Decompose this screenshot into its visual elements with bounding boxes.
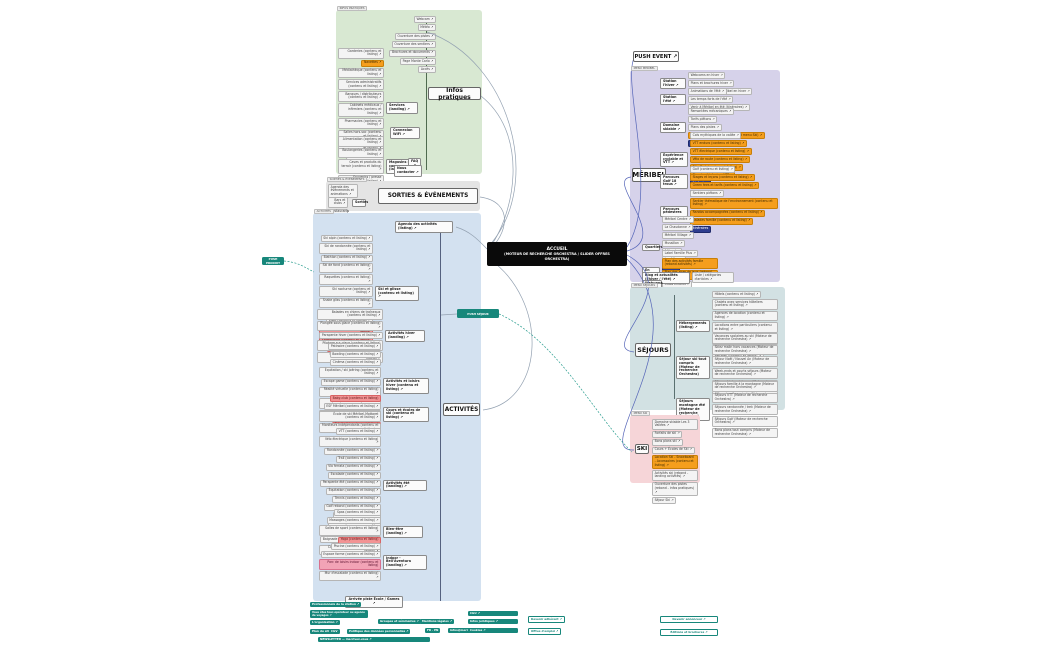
footer-btn-langues[interactable]: FR · EN [425,628,440,633]
leaf-node[interactable]: Week-ends et courts séjours (Moteur de r… [712,368,778,379]
footer-btn-donnees[interactable]: Politique des données personnelles ↗ [347,629,410,634]
ecoles-node[interactable]: Cours et écoles de ski (contenu et listi… [383,407,429,422]
block-meribel: MENU MERIBEL MÉRIBEL Station l'hiver ↗ W… [630,70,780,282]
block-tag-meribel: MENU MERIBEL [631,66,658,72]
leaf-node[interactable]: École de ski Méribel-Mottaret (contenu e… [319,411,381,422]
services-node[interactable]: Services (landing) ↗ [386,102,418,114]
leaf-node[interactable]: Locations entre particuliers (contenu et… [712,322,778,333]
bienetre-node[interactable]: Bien-être (landing) ↗ [383,526,423,538]
leaf-node[interactable]: Skiez malin hors vacances (Moteur de rec… [712,345,778,356]
leaf-node[interactable]: ESF Méribel (contenu et listing) ↗ [324,403,381,410]
connector-lines [0,0,1050,650]
leaf-node[interactable]: Ski nocturne (contenu et listing) ↗ [319,286,373,297]
leaf-node[interactable]: Alimentation (contenu et listing) ↗ [338,136,384,147]
footer-btn-organisation[interactable]: L'organisation ↗ [310,620,340,625]
leaf-node[interactable]: Patinoire (contenu et listing) ↗ [328,343,381,350]
leaf-node[interactable]: Webcam ↗ [414,16,436,23]
leaf-node[interactable]: Bars et clubs ↗ [328,197,348,208]
sejours-node-1[interactable]: Séjour ski tout compris (Moteur de reche… [676,356,710,379]
footer-btn-pros[interactable]: Professionnels de la station ↗ [310,602,361,607]
leaf-node[interactable]: Green fees et tarifs (contenu et listing… [690,182,759,189]
infos-title-node[interactable]: Infos pratiques [428,87,481,100]
leaf-node[interactable]: Pharmacies (contenu et listing) ↗ [338,118,384,129]
footer-btn-editions[interactable]: Éditions et brochures ↗ [660,629,718,636]
leaf-node[interactable]: Piscine (contenu et listing) ↗ [331,543,381,550]
ski-items: Domaine skiable Les 3 Vallées ↗Forfaits … [652,419,698,504]
leaf-node[interactable]: Animations de l'été ↗ [688,88,727,95]
leaf-node[interactable]: VTT électrique (contenu et listing) ↗ [690,148,752,155]
leaf-node[interactable]: Vacances scolaires au ski (Moteur de rec… [712,333,778,344]
footer-btn-mentions[interactable]: Mentions légales ↗ [420,619,454,624]
leaf-node[interactable]: Boulangeries (contenu et listing) ↗ [338,148,384,159]
leaf-node[interactable]: Vélo de route (contenu et listing) ↗ [690,156,750,163]
meribel-node-4[interactable]: Parcours Golf 18 trous ↗ [660,174,688,189]
leaf-node[interactable]: Cinéma (contenu et listing) ↗ [330,359,381,366]
block-sejours: MENU SEJOURS SÉJOURS Hébergements (listi… [630,287,785,410]
push-right-node[interactable]: PUSH SÉJOUR [457,309,499,318]
leaf-node[interactable]: Spas (contenu et listing) ↗ [334,509,381,516]
leaf-node[interactable]: Remontées mécaniques ↗ [688,108,734,115]
branch-indoor: Piscine (contenu et listing) ↗Espace for… [319,543,427,581]
meribel-children-8: Liste / catégories d'articles ↗ [692,272,734,283]
leaf-node[interactable]: Séjours randonnée / trek (Moteur de rech… [712,404,778,415]
leaf-node[interactable]: Caves et produits du terroir (contenu et… [338,159,384,173]
leaf-node[interactable]: Golf (contenu et listing) ↗ [690,166,735,173]
leaf-node[interactable]: Plongée sous glace (contenu et listing) … [317,321,383,332]
leaf-node[interactable]: VTT enduro (contenu et listing) ↗ [690,140,747,147]
sorties-title-node[interactable]: SORTIES & ÉVÉNEMENTS [378,188,478,204]
leaf-node[interactable]: Les temps forts de l'été ↗ [688,96,733,103]
leaf-node[interactable]: Accès ↗ [418,66,436,73]
footer-btn-juridique[interactable]: Infos juridiques ↗ [468,619,518,624]
footer-btn-cgv[interactable]: CGV [329,629,340,634]
leaf-node[interactable]: Forfaits de ski ↗ [652,431,682,438]
sitemap-canvas: INFOS PRATIQUES Webcam ↗Météo ↗Ouverture… [0,0,1050,650]
loisirs-node[interactable]: Activités et loisirs hiver (contenu et l… [383,378,429,393]
leaf-node[interactable]: Services administratifs (contenu et list… [338,79,384,90]
leaf-node[interactable]: Sentier thématique de l'environnement (c… [690,198,778,209]
block-tag-ski: MENU SKI [631,411,650,417]
glisse-node[interactable]: Ski et glisse (contenu et listing) ↗ [375,286,419,301]
leaf-node[interactable]: Baby-club (contenu et listing) [330,395,381,402]
leaf-node[interactable]: Séjours Golf (Moteur de recherche Orches… [712,416,778,427]
leaf-node[interactable]: Location Ski - Snowboard - Accessoires (… [652,455,698,469]
sejours-spine [674,295,675,399]
block-activites: ACTIVITÉS Agenda des activités (listing)… [313,213,481,601]
leaf-node[interactable]: Navettes ↗ [361,60,384,67]
meribel-node-3[interactable]: Expérience cyclable et VTT ↗ [660,152,688,167]
leaf-node[interactable]: Séjour Noël / Nouvel An (Moteur de reche… [712,356,778,367]
leaf-node[interactable]: La Chaudanne ↗ [662,224,693,231]
block-infos-pratiques: INFOS PRATIQUES Webcam ↗Météo ↗Ouverture… [336,10,482,174]
leaf-node[interactable]: Méribel Centre ↗ [662,216,694,223]
leaf-node[interactable]: Cours + Écoles de Ski ↗ [652,447,695,454]
meribel-node-1[interactable]: Station l'été ↗ [660,94,686,106]
push-left-node[interactable]: PUSH PRODUIT [262,257,284,265]
push-event-node[interactable]: PUSH EVENT ↗ [633,51,679,62]
leaf-node[interactable]: Plan des activités famille (rebond activ… [662,258,718,269]
leaf-node[interactable]: Salles de sport (contenu et listing) ↗ [319,525,381,536]
block-ski: MENU SKI SKI Domaine skiable Les 3 Vallé… [630,415,700,483]
leaf-node[interactable]: Ski de fond (contenu et listing) ↗ [319,263,373,274]
leaf-node[interactable]: Séjours VTT (Moteur de recherche Orchest… [712,393,778,404]
leaf-node[interactable]: Liste / catégories d'articles ↗ [692,272,734,283]
leaf-node[interactable]: Ouverture des pistes ↗ [395,33,436,40]
sejours-node-0[interactable]: Hébergements (listing) ↗ [676,320,710,332]
leaf-node[interactable]: Bowling (contenu et listing) ↗ [330,351,381,358]
leaf-node[interactable]: Biathlon (contenu et listing) ↗ [321,255,373,262]
leaf-node[interactable]: Cols mythiques de la vallée ↗ [690,132,741,139]
indoor-node[interactable]: Indoor - Bell'Aventura (landing) ↗ [383,555,427,570]
leaf-node[interactable]: Agences de location (contenu et listing)… [712,311,778,322]
leaf-node[interactable]: Ouverture des pistes (rebond - infos pra… [652,482,698,496]
activites-title-node[interactable]: ACTIVITÉS [443,403,480,416]
indoor-leaves: Piscine (contenu et listing) ↗Espace for… [319,543,381,581]
footer-btn-adherent[interactable]: Devenir adhérent ↗ [528,616,565,623]
leaf-node[interactable]: Sentiers piétons ↗ [690,190,724,197]
leaf-node[interactable]: Raquettes (contenu et listing) ↗ [319,274,373,285]
leaf-node[interactable]: Médiathèque (contenu et listing) ↗ [338,68,384,79]
leaf-node[interactable]: Stages et leçons (contenu et listing) ↗ [690,174,755,181]
ski-title-node[interactable]: SKI [635,444,649,454]
leaf-node[interactable]: Chalets avec services hôteliers (contenu… [712,299,778,310]
leaf-node[interactable]: Parapente hiver (contenu et listing) ↗ [319,332,383,339]
block-sorties: SORTIES & ÉVÉNEMENTS Agenda des événemen… [326,181,480,211]
sejours-title-node[interactable]: SÉJOURS [635,343,671,357]
footer-btn-cookies[interactable]: Cookies ↗ [468,628,518,633]
leaf-node[interactable]: Tarifs piétons ↗ [688,116,717,123]
sorties-node[interactable]: Sorties [352,199,366,207]
leaf-node[interactable]: Mur d'escalade (contenu et listing) ↗ [319,571,381,582]
footer-btn-emploi[interactable]: Offres d'emploi ↗ [528,628,561,635]
leaf-node[interactable]: Domaine skiable Les 3 Vallées ↗ [652,419,698,430]
leaf-node[interactable]: Ski de randonnée (contenu et listing) ↗ [319,243,373,254]
leaf-node[interactable]: Massages (contenu et listing) ↗ [327,517,381,524]
leaf-node[interactable]: Équitation / ski joëring (contenu et lis… [319,367,381,378]
leaf-node[interactable]: Ski alpin (contenu et listing) ↗ [321,235,373,242]
contact-node[interactable]: Nous contacter ↗ [394,165,422,177]
meribel-children-5: Sentiers piétons ↗Sentier thématique de … [690,190,778,233]
leaf-node[interactable]: Mussillon ↗ [662,240,685,247]
leaf-node[interactable]: Méribel Village ↗ [662,232,694,239]
leaf-node[interactable]: Équitation (contenu et listing) ↗ [326,488,381,495]
leaf-node[interactable]: Randonnée (contenu et listing) ↗ [324,448,381,455]
leaf-node[interactable]: Activités ski (rebond - landing activité… [652,470,698,481]
leaf-node[interactable]: VTT (contenu et listing) ↗ [336,428,381,435]
leaf-node[interactable]: Séjours famille à la montagne (Moteur de… [712,381,778,392]
leaf-node[interactable]: Météo ↗ [418,24,436,31]
leaf-node[interactable]: Plans et brochures hiver ↗ [688,80,734,87]
leaf-node[interactable]: Tennis (contenu et listing) ↗ [332,496,381,503]
block-tag-activites: ACTIVITÉS [314,209,334,215]
block-tag-sorties: SORTIES & ÉVÉNEMENTS [327,177,367,183]
leaf-node[interactable]: Escalade (contenu et listing) ↗ [328,472,381,479]
footer-btn-cgu[interactable]: CGU ↗ [468,611,518,616]
block-tag-infos: INFOS PRATIQUES [337,6,367,12]
accueil-subtitle: (MOTEUR DE RECHERCHE ORCHESTRA / SLIDER … [487,252,627,261]
leaf-node[interactable]: Label Famille Plus ↗ [662,250,698,257]
block-tag-sejours: MENU SEJOURS [631,283,658,289]
leaf-node[interactable]: Vélo électrique (contenu et listing) ↗ [319,436,381,447]
leaf-node[interactable]: Espace forme (contenu et listing) ↗ [321,551,381,558]
leaf-node[interactable]: Hôtels (contenu et listing) ↗ [712,291,761,298]
footer-btn-groupes[interactable]: Groupes et séminaires ↗ [378,619,421,624]
leaf-node[interactable]: Snake gliss (contenu et listing) ↗ [319,298,373,309]
leaf-node[interactable]: Séjour Ski ↗ [652,497,676,504]
ete-node[interactable]: Activités été (landing) ↗ [383,480,427,492]
accueil-center-node[interactable]: ACCUEIL (MOTEUR DE RECHERCHE ORCHESTRA /… [487,242,627,266]
leaf-node[interactable]: Banques / distributeurs (contenu et list… [338,91,384,102]
leaf-node[interactable]: Plans des pistes ↗ [688,124,722,131]
footer-btn-newsletter[interactable]: NEWSLETTER — inscrivez-vous ↗ [318,637,430,642]
hiver-node[interactable]: Activités hiver (landing) ↗ [385,330,425,342]
leaf-node[interactable]: Bons plans ski ↗ [652,439,683,446]
leaf-node[interactable]: Cabinets médicaux / infirmiers (contenu … [338,103,384,117]
leaf-node[interactable]: Escape game (contenu et listing) ↗ [321,379,381,386]
sejours-children-2: Séjours famille à la montagne (Moteur de… [712,381,778,438]
leaf-node[interactable]: Garderies (contenu et listing) ↗ [338,48,384,59]
footer-btn-annonceur[interactable]: Devenir annonceur ↗ [660,616,718,623]
leaf-node[interactable]: Balades en chiens de traîneaux (contenu … [317,309,383,320]
leaf-node[interactable]: Bons plans tout compris (Moteur de reche… [712,428,778,439]
leaf-node[interactable]: Parc de loisirs indoor (contenu et listi… [319,559,381,570]
leaf-node[interactable]: Via ferrata (contenu et listing) ↗ [326,464,381,471]
footer-btn-to-agences[interactable]: Vous êtes tour-opérateur ou agence de vo… [310,610,368,618]
activites-spine [440,227,441,601]
activites-agenda-node[interactable]: Agenda des activités (listing) ↗ [395,221,453,233]
leaf-node[interactable]: Parapente été (contenu et listing) ↗ [320,480,381,487]
leaf-node[interactable]: Webcams en hiver ↗ [688,72,725,79]
leaf-node[interactable]: Trail (contenu et listing) ↗ [336,456,382,463]
